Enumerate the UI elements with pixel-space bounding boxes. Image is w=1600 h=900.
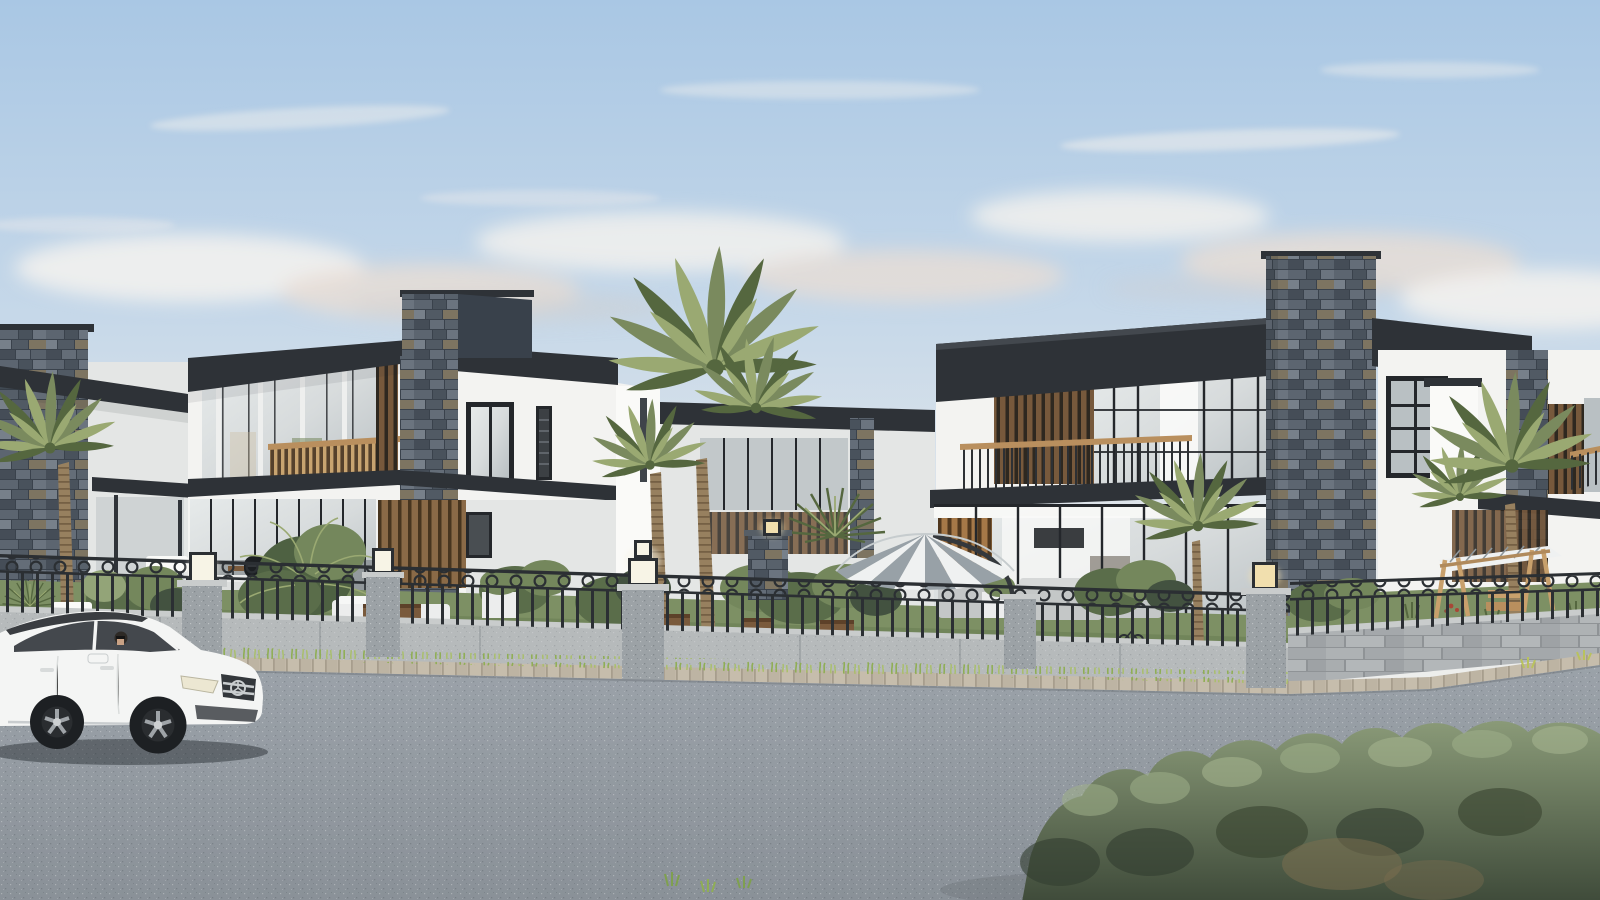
car-door-handle [40, 668, 54, 672]
car-door-handle [100, 666, 114, 670]
car-front-wheel [130, 697, 187, 754]
stone-tower-cap-side [458, 294, 532, 358]
slit-window [536, 406, 552, 480]
lower-slat-screen [1452, 510, 1548, 582]
bush-dry-patch [1282, 838, 1402, 890]
rear-stone-strip [850, 418, 874, 558]
render-viewport [0, 0, 1600, 900]
ground-window [466, 512, 492, 558]
gate-lantern [760, 519, 784, 537]
rear-villa-glass [700, 438, 848, 510]
bronze-balusters [1570, 450, 1600, 490]
upper-window [464, 402, 516, 487]
column-cap [1424, 378, 1482, 387]
interior-warm-glow [230, 432, 256, 484]
villa-render-scene [0, 0, 1600, 900]
car-b-pillar [94, 621, 96, 650]
upper-slat-strip [376, 364, 398, 484]
pillar-4 [1000, 594, 1040, 669]
car-rear-wheel [30, 695, 84, 749]
stone-tower-cap [402, 294, 458, 358]
bush-dry-patch [1384, 860, 1484, 900]
car-mirror [88, 654, 108, 663]
